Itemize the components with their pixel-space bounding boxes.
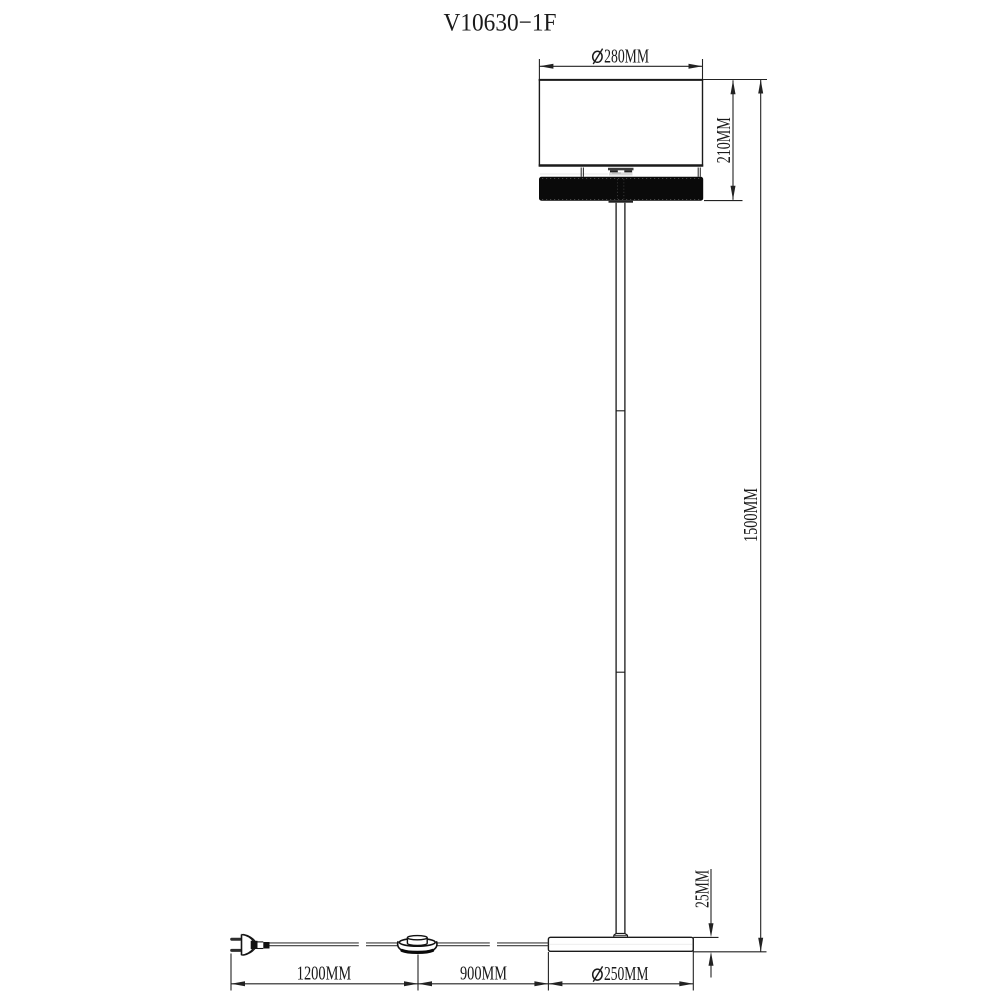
svg-text:280MM: 280MM xyxy=(604,46,649,67)
svg-text:1200MM: 1200MM xyxy=(297,964,352,985)
svg-text:V10630−1F: V10630−1F xyxy=(444,7,557,36)
svg-text:25MM: 25MM xyxy=(692,870,713,908)
svg-text:900MM: 900MM xyxy=(460,964,507,985)
svg-text:210MM: 210MM xyxy=(714,117,735,163)
svg-text:250MM: 250MM xyxy=(604,964,649,985)
svg-text:1500MM: 1500MM xyxy=(741,488,762,542)
